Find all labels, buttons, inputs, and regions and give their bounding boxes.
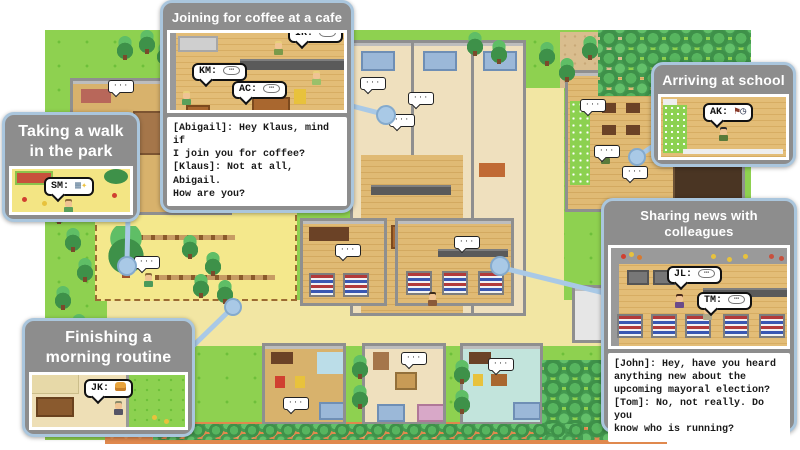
dialogue-text: [John]: Hey, have you heard anything new… (608, 353, 790, 442)
character-klaus (312, 71, 321, 84)
hallway-strip (683, 149, 783, 154)
tree (203, 252, 223, 276)
store-shelf (651, 314, 677, 338)
speech-bubble: AK: ⚑◷ (703, 103, 753, 122)
table (252, 97, 290, 113)
tree (537, 42, 557, 66)
cafe-scene[interactable]: KM: ⋯ AC: ⋯ IR: ⋯ (167, 30, 347, 113)
flower (112, 193, 117, 198)
mini-speech-bubble: ··· (134, 256, 160, 269)
harp (373, 352, 389, 370)
yard (129, 375, 188, 427)
speech-bubble: JK: (84, 379, 133, 398)
hanging-goods (779, 256, 784, 261)
callout-panel-coffee: Joining for coffee at a cafe KM: ⋯ AC: ⋯ (160, 0, 354, 213)
tree (350, 355, 370, 379)
sign (663, 99, 677, 105)
tree (137, 30, 157, 54)
table (395, 372, 417, 390)
speaker-initials: JK: (91, 383, 109, 394)
mini-speech-bubble: ··· (408, 92, 434, 105)
tree (63, 228, 83, 252)
character-abigail (182, 91, 191, 104)
panel-title: Arriving at school (658, 69, 789, 94)
store-shelf (723, 314, 749, 338)
panel-title: Taking a walk in the park (9, 119, 133, 166)
callout-panel-routine: Finishing a morning routine JK: (22, 318, 195, 437)
tree (215, 280, 235, 304)
desk (626, 103, 640, 113)
tree (465, 32, 485, 56)
speaker-initials: TM: (704, 295, 722, 306)
market-counter (438, 249, 508, 257)
flower-display (621, 254, 626, 259)
speaker-initials: AC: (239, 84, 257, 95)
flower (22, 197, 27, 202)
chair (473, 374, 483, 386)
speech-bubble: JL: ⋯ (667, 266, 722, 284)
tree (191, 274, 211, 298)
flower (164, 419, 169, 424)
villager (144, 273, 153, 286)
mini-speech-bubble: ··· (108, 80, 134, 93)
tree (75, 258, 95, 282)
pastry-icon (115, 382, 126, 391)
tree (452, 390, 472, 414)
cafe-counter (240, 59, 347, 70)
store-shelf (309, 273, 335, 297)
flower (152, 415, 157, 420)
speaker-initials: SM: (51, 181, 69, 192)
bed (319, 402, 346, 420)
callout-panel-walk: Taking a walk in the park SM: ▦✦ (2, 112, 140, 222)
house-bottom-3 (460, 343, 543, 425)
mini-speech-bubble: ··· (454, 236, 480, 249)
store-shelf (442, 271, 468, 295)
wall (170, 33, 176, 110)
tree (580, 36, 600, 60)
panel-title: Joining for coffee at a cafe (167, 7, 347, 30)
school-garden (663, 105, 687, 153)
market-scene[interactable]: JL: ⋯ TM: ⋯ (608, 245, 790, 349)
speaker-initials: IR: (295, 30, 313, 39)
bed (423, 51, 457, 71)
chat-dots-icon: ⋯ (728, 295, 745, 304)
tree (53, 286, 73, 310)
speaker-initials: KM: (199, 66, 217, 77)
tree (350, 385, 370, 409)
chair (295, 376, 305, 388)
dialogue-text: [Abigail]: Hey Klaus, mind if I join you… (167, 117, 347, 206)
garland (711, 254, 716, 259)
callout-panel-news: Sharing news with colleagues JL: (601, 198, 797, 433)
mini-speech-bubble: ··· (283, 397, 309, 410)
bush (104, 169, 128, 184)
character-john-lin (114, 401, 123, 414)
speaker-initials: JL: (674, 269, 692, 280)
tree (180, 235, 200, 259)
bookshelf (271, 352, 293, 364)
character-john (675, 294, 684, 307)
tree (557, 58, 577, 82)
cafe-counter (371, 185, 451, 195)
fence (14, 213, 130, 215)
flower-display (637, 255, 642, 260)
cafe-store (300, 218, 387, 306)
furniture (81, 89, 111, 103)
character-klaus-student (719, 127, 728, 140)
title-line: morning routine (46, 349, 172, 366)
mini-speech-bubble: ··· (335, 244, 361, 257)
tree (115, 36, 135, 60)
smallville-simulation-screen: ··· ··· ··· ··· ··· ··· ··· ··· ··· ··· … (0, 0, 800, 450)
villager (428, 292, 437, 305)
callout-panel-school: Arriving at school AK: ⚑◷ (651, 62, 796, 167)
bed (361, 51, 395, 71)
character-isabella (274, 41, 283, 54)
speaker-initials: AK: (710, 107, 728, 118)
chat-dots-icon: ⋯ (263, 84, 280, 93)
home-scene[interactable]: JK: (29, 372, 188, 430)
mini-speech-bubble: ··· (594, 145, 620, 158)
store-shelf (617, 314, 643, 338)
house-bottom-1 (262, 343, 346, 425)
tree (452, 360, 472, 384)
clock-icon: ◷ (740, 107, 746, 118)
sparkle-icon: ✦ (81, 181, 87, 192)
bed (377, 404, 405, 422)
bed (417, 404, 445, 422)
panel-title: Sharing news with colleagues (608, 205, 790, 245)
speech-bubble: AC: ⋯ (232, 81, 287, 99)
store-shelf (343, 273, 369, 297)
speech-bubble: SM: ▦✦ (44, 177, 94, 196)
garland (743, 254, 748, 259)
picture-frame (627, 270, 649, 285)
shelf (309, 227, 349, 241)
title-line: Taking a walk (18, 123, 123, 140)
yellow-chair (294, 89, 306, 104)
mini-speech-bubble: ··· (622, 166, 648, 179)
mini-speech-bubble: ··· (580, 99, 606, 112)
title-line: in the park (29, 143, 112, 160)
speech-bubble: KM: ⋯ (192, 63, 247, 81)
garland (727, 257, 732, 262)
speech-bubble: TM: ⋯ (697, 292, 752, 310)
chat-dots-icon: ⋯ (698, 269, 715, 278)
tile-floor (32, 375, 79, 394)
chat-dots-icon: ⋯ (223, 66, 240, 75)
dresser (479, 163, 505, 177)
hanging-goods (769, 254, 774, 259)
mini-speech-bubble: ··· (389, 114, 415, 127)
forest-strip (153, 424, 583, 440)
store-shelf (759, 314, 785, 338)
school-scene[interactable]: AK: ⚑◷ (658, 94, 789, 161)
mini-speech-bubble: ··· (401, 352, 427, 365)
flower (42, 201, 47, 206)
store-shelf (478, 271, 504, 295)
flower-display (629, 252, 634, 257)
chair (275, 376, 285, 388)
bed (513, 402, 541, 420)
chat-dots-icon: ⋯ (319, 30, 336, 37)
table (491, 374, 507, 386)
bathroom (317, 352, 343, 374)
character-sam (64, 199, 73, 212)
title-line: Finishing a (65, 329, 152, 346)
mini-speech-bubble: ··· (360, 77, 386, 90)
park-scene[interactable]: SM: ▦✦ (9, 166, 133, 215)
panel-title: Finishing a morning routine (29, 325, 188, 372)
mini-speech-bubble: ··· (488, 358, 514, 371)
desk (626, 125, 640, 135)
supermarket (395, 218, 514, 306)
tree (489, 40, 509, 64)
dresser (36, 397, 74, 417)
table (186, 105, 210, 113)
sofa (178, 36, 218, 52)
speech-bubble-partial: IR: ⋯ (288, 30, 343, 43)
desk (602, 125, 616, 135)
